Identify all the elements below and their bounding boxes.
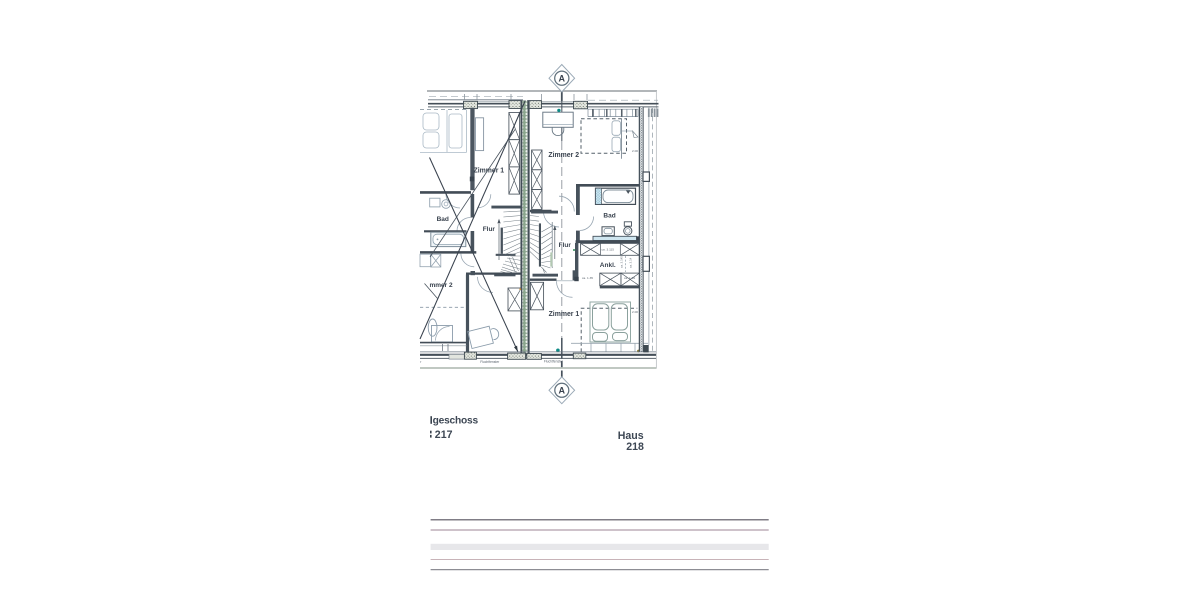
svg-text:218: 218 <box>626 441 644 453</box>
svg-text:r: r <box>420 360 422 364</box>
svg-text:Zimmer 1: Zimmer 1 <box>549 311 580 318</box>
svg-text:Fluchtfenster: Fluchtfenster <box>544 359 564 363</box>
svg-text:Bad: Bad <box>603 213 615 220</box>
svg-text:ca. 2.145: ca. 2.145 <box>620 256 624 268</box>
svg-text:Bad: Bad <box>437 216 449 223</box>
svg-text:Fluchtfenster: Fluchtfenster <box>480 360 500 364</box>
svg-text:2.00: 2.00 <box>632 149 638 153</box>
svg-text:Flur: Flur <box>483 226 496 233</box>
svg-text:217: 217 <box>435 429 453 441</box>
svg-text:mmer 2: mmer 2 <box>430 282 454 289</box>
svg-text:Ankl.: Ankl. <box>600 262 616 269</box>
svg-text:ca. 2.14: ca. 2.14 <box>629 257 633 268</box>
svg-text:ca. 3.115: ca. 3.115 <box>602 248 615 252</box>
svg-text:ca. 1.35: ca. 1.35 <box>582 276 593 280</box>
svg-text:2.00: 2.00 <box>632 310 638 314</box>
svg-text:A: A <box>559 386 566 396</box>
svg-text:Zimmer 2: Zimmer 2 <box>548 152 579 159</box>
svg-text:geschoss: geschoss <box>433 416 479 427</box>
svg-text:Flur: Flur <box>559 242 572 249</box>
svg-text:A: A <box>559 73 566 83</box>
svg-text:ca. 1.04: ca. 1.04 <box>624 276 635 280</box>
